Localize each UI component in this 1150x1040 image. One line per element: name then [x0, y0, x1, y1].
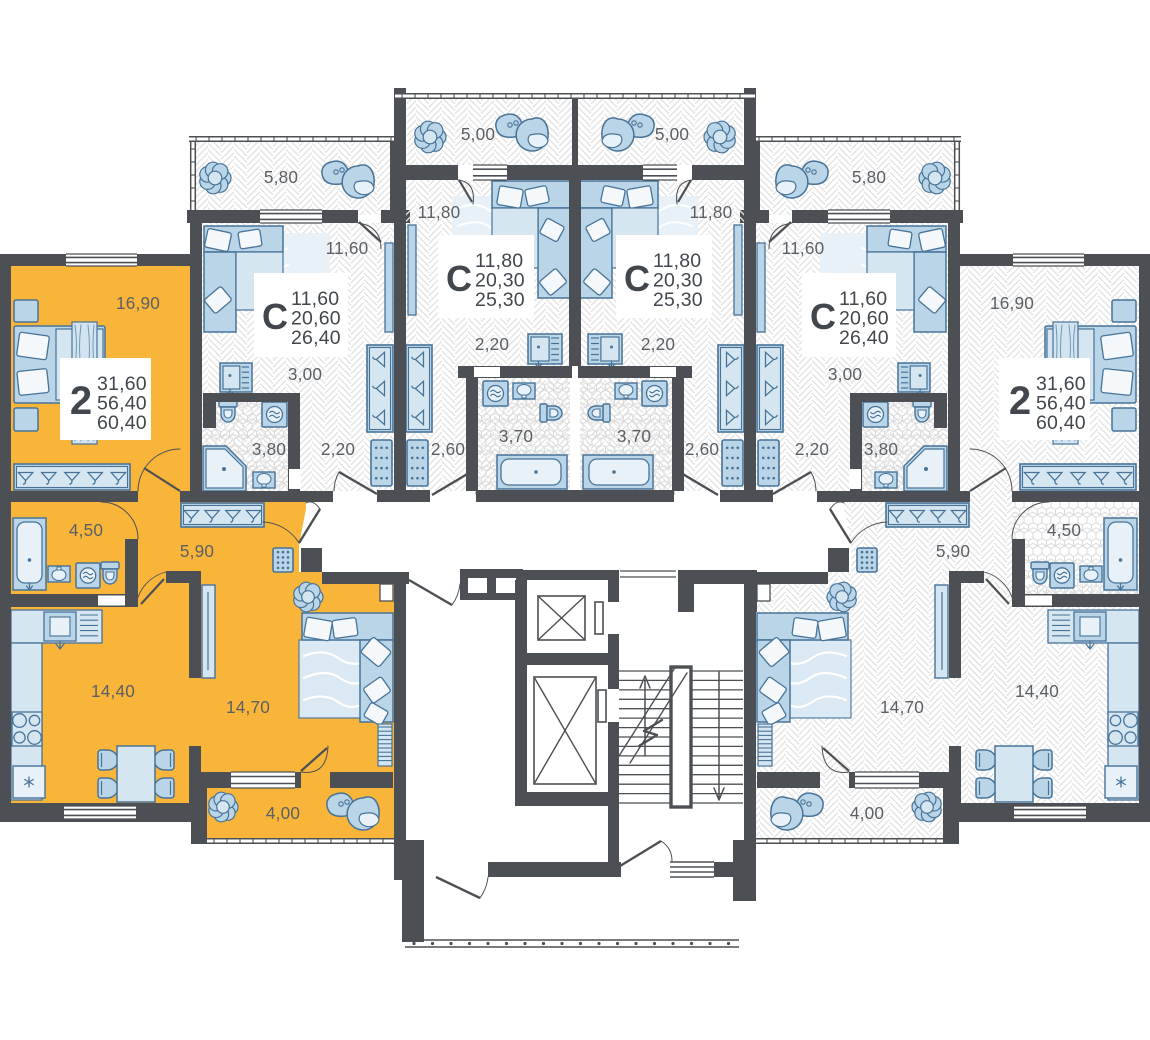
svg-text:11,80: 11,80	[690, 202, 733, 222]
svg-text:5,80: 5,80	[852, 167, 886, 187]
svg-text:С: С	[262, 296, 288, 337]
svg-text:60,40: 60,40	[97, 412, 147, 434]
svg-text:2: 2	[70, 379, 92, 423]
svg-text:2,20: 2,20	[795, 439, 829, 459]
svg-text:16,90: 16,90	[116, 293, 160, 313]
svg-text:3,80: 3,80	[252, 439, 286, 459]
svg-text:14,70: 14,70	[226, 697, 270, 717]
svg-text:2,60: 2,60	[431, 439, 465, 459]
svg-text:4,00: 4,00	[850, 803, 884, 823]
svg-text:С: С	[446, 258, 472, 299]
svg-text:26,40: 26,40	[839, 327, 889, 349]
svg-text:5,90: 5,90	[936, 541, 970, 561]
svg-text:2: 2	[1009, 379, 1031, 423]
svg-text:16,90: 16,90	[990, 293, 1034, 313]
svg-text:4,50: 4,50	[69, 520, 103, 540]
svg-text:2,60: 2,60	[685, 439, 719, 459]
svg-text:14,70: 14,70	[880, 697, 924, 717]
svg-text:60,40: 60,40	[1036, 412, 1086, 434]
svg-text:5,80: 5,80	[264, 167, 298, 187]
svg-text:26,40: 26,40	[291, 327, 341, 349]
svg-text:С: С	[810, 296, 836, 337]
svg-text:2,20: 2,20	[641, 334, 675, 354]
svg-text:3,70: 3,70	[617, 426, 651, 446]
svg-text:5,00: 5,00	[655, 124, 689, 144]
svg-text:4,00: 4,00	[266, 803, 300, 823]
svg-text:11,80: 11,80	[418, 202, 461, 222]
svg-text:5,00: 5,00	[461, 124, 495, 144]
svg-text:14,40: 14,40	[1015, 681, 1059, 701]
svg-text:3,00: 3,00	[288, 364, 322, 384]
svg-text:25,30: 25,30	[475, 289, 525, 311]
svg-text:С: С	[624, 258, 650, 299]
svg-text:5,90: 5,90	[180, 541, 214, 561]
svg-text:4,50: 4,50	[1047, 520, 1081, 540]
svg-text:25,30: 25,30	[653, 289, 703, 311]
svg-text:3,70: 3,70	[499, 426, 533, 446]
svg-text:2,20: 2,20	[321, 439, 355, 459]
svg-text:3,80: 3,80	[864, 439, 898, 459]
svg-text:11,60: 11,60	[326, 238, 369, 258]
svg-text:14,40: 14,40	[91, 681, 135, 701]
svg-text:3,00: 3,00	[828, 364, 862, 384]
svg-text:11,60: 11,60	[782, 238, 825, 258]
svg-text:2,20: 2,20	[475, 334, 509, 354]
